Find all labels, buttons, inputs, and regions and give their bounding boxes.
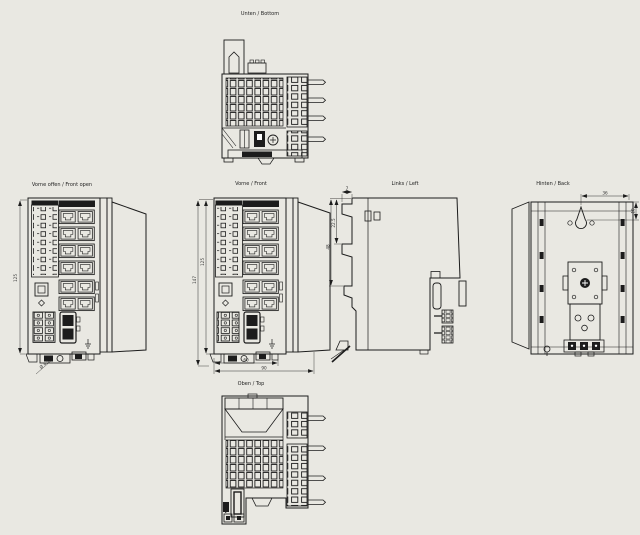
bottom-terminal-tab bbox=[224, 40, 266, 74]
front-terminal-block bbox=[217, 312, 239, 342]
front-port-label-band bbox=[243, 201, 279, 208]
drawing-canvas: Unten / Bottom bbox=[0, 0, 640, 535]
front-console-port bbox=[219, 283, 232, 306]
top-left-connector-block bbox=[223, 489, 244, 522]
front-led-panel bbox=[216, 201, 243, 278]
front-height-dimensions: 147 125 bbox=[192, 200, 213, 367]
left-hook-pitch-value: 48 bbox=[325, 244, 330, 250]
view-back-label: Hinten / Back bbox=[536, 181, 570, 187]
view-bottom: Unten / Bottom bbox=[222, 11, 326, 164]
left-connector-bay bbox=[431, 272, 466, 344]
top-connector-pins bbox=[308, 416, 326, 505]
back-housing bbox=[531, 202, 633, 354]
view-front-label: Vorne / Front bbox=[235, 181, 267, 187]
front-ground-symbol bbox=[269, 339, 275, 348]
front-height-inner-value: 125 bbox=[200, 258, 205, 266]
back-rails bbox=[531, 202, 633, 354]
front-open-led-panel bbox=[32, 201, 59, 278]
front-open-console-port bbox=[35, 283, 48, 306]
front-height-outer-value: 147 bbox=[192, 276, 197, 284]
back-keyhole-dimensions: 36 10 bbox=[581, 191, 639, 221]
bottom-vent-grille bbox=[226, 78, 283, 126]
front-open-rj45-ports bbox=[59, 210, 99, 311]
front-width-total-value: 90 bbox=[261, 366, 267, 371]
back-side-panel bbox=[512, 202, 529, 349]
view-front: Vorne / Front 147 125 bbox=[192, 181, 330, 374]
view-left: Links / Left 7 22.5 48 bbox=[325, 181, 466, 362]
back-keyhole-drop-value: 10 bbox=[631, 208, 636, 214]
view-top: Oben / Top bbox=[222, 381, 326, 524]
view-front-open: Vorne offen / Front open 125 bbox=[13, 182, 146, 374]
bottom-terminal-slots bbox=[287, 77, 307, 156]
view-bottom-label: Unten / Bottom bbox=[241, 11, 279, 17]
bottom-connector-pins bbox=[308, 80, 326, 142]
front-open-power-connector bbox=[60, 312, 80, 343]
front-open-side-panels bbox=[100, 198, 146, 352]
left-top-detail bbox=[365, 211, 380, 221]
front-open-ground-symbol bbox=[85, 339, 91, 348]
front-open-terminal-block bbox=[33, 312, 55, 342]
top-bottom-notch bbox=[252, 498, 272, 506]
view-back: Hinten / Back 36 10 bbox=[512, 181, 639, 356]
top-hood bbox=[225, 409, 283, 440]
front-width-body-value: 60 bbox=[243, 358, 249, 363]
dimension-drawing-page: Unten / Bottom bbox=[0, 0, 640, 535]
left-hook-width-value: 7 bbox=[346, 186, 349, 191]
front-open-height-dimension: 125 bbox=[13, 200, 27, 354]
front-side-panels bbox=[286, 198, 330, 352]
top-vent-grille bbox=[226, 440, 283, 488]
back-keyhole-slot bbox=[568, 207, 594, 229]
left-dimensions: 7 22.5 48 bbox=[325, 186, 352, 286]
front-power-connector bbox=[244, 312, 264, 343]
view-top-label: Oben / Top bbox=[238, 381, 265, 387]
view-left-label: Links / Left bbox=[391, 181, 418, 187]
back-din-rail-mount bbox=[563, 262, 607, 340]
left-din-release-latch bbox=[331, 341, 428, 362]
front-open-port-label-band bbox=[59, 201, 95, 208]
front-open-height-value: 125 bbox=[13, 274, 18, 282]
top-terminal-slots bbox=[287, 412, 307, 506]
front-rj45-ports bbox=[243, 210, 283, 311]
left-hook-offset-value: 22.5 bbox=[331, 218, 336, 228]
view-front-open-label: Vorne offen / Front open bbox=[32, 182, 92, 188]
back-keyhole-offset-value: 36 bbox=[602, 191, 608, 196]
